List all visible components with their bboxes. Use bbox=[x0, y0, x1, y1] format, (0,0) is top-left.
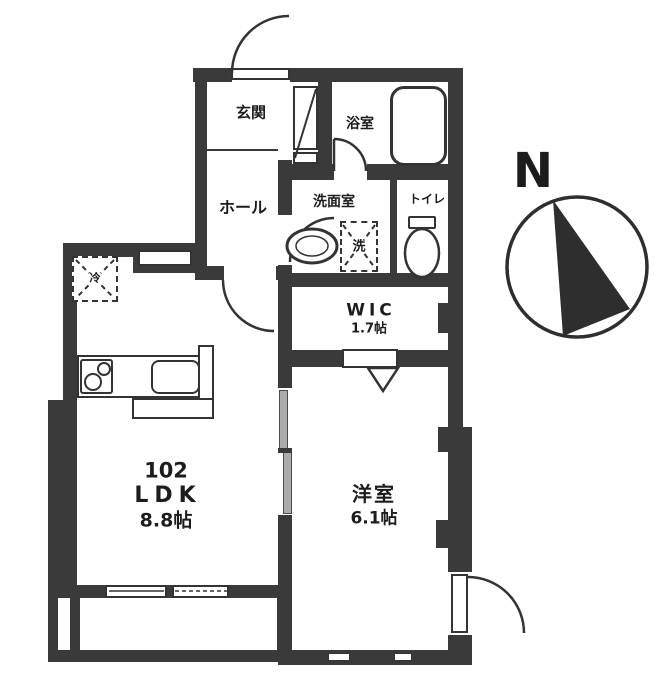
wash-basin bbox=[287, 229, 337, 263]
genkan-step-line bbox=[207, 149, 278, 151]
shoe-cabinet-lower bbox=[293, 152, 318, 164]
counter-ledge bbox=[132, 398, 214, 419]
hall-ldk-door-arc bbox=[223, 280, 274, 331]
toilet-tank bbox=[408, 216, 436, 229]
compass-needle bbox=[553, 200, 630, 336]
wall-pillar bbox=[436, 520, 450, 548]
stove-burner bbox=[97, 362, 111, 376]
room-label-ldk: LDK bbox=[134, 485, 201, 507]
wall bbox=[448, 82, 463, 572]
sliding-door-panel bbox=[279, 390, 288, 450]
wall bbox=[290, 68, 463, 82]
washer-symbol: 洗 bbox=[350, 241, 367, 254]
toilet-bowl bbox=[405, 229, 439, 277]
sliding-door-stub bbox=[278, 448, 292, 453]
window bbox=[138, 250, 192, 266]
room-label-western: 洋室 bbox=[352, 484, 396, 504]
wall bbox=[48, 400, 77, 598]
wall bbox=[278, 273, 463, 287]
room-label-hall: ホール bbox=[219, 200, 267, 216]
hall-ldk-door-opening bbox=[224, 266, 276, 280]
sliding-window bbox=[105, 585, 167, 598]
wall bbox=[448, 635, 463, 650]
compass-circle bbox=[507, 197, 647, 337]
wash-basin-inner bbox=[296, 236, 328, 256]
vent-slot bbox=[394, 653, 412, 661]
north-label: N bbox=[513, 147, 553, 195]
bedroom-door-arc bbox=[468, 577, 524, 633]
bathtub bbox=[390, 86, 447, 166]
kitchen-sink bbox=[151, 360, 200, 394]
balcony-divider bbox=[70, 598, 80, 650]
wall-pillar bbox=[438, 303, 450, 333]
entrance-door-opening bbox=[232, 68, 290, 82]
sliding-window bbox=[172, 585, 229, 598]
bath-door-opening bbox=[334, 164, 367, 180]
room-label-wic: WIC bbox=[346, 303, 396, 320]
wall bbox=[318, 82, 332, 164]
shoe-cabinet bbox=[293, 86, 318, 150]
wall bbox=[390, 180, 397, 273]
room-label-washroom: 洗面室 bbox=[313, 195, 355, 209]
sliding-door-panel bbox=[283, 452, 292, 514]
room-label-genkan: 玄関 bbox=[236, 106, 266, 121]
fridge-symbol: 冷 bbox=[88, 273, 103, 284]
unit-number: 102 bbox=[144, 461, 188, 482]
washroom-door-opening bbox=[278, 215, 292, 265]
room-size-ldk: 8.8帖 bbox=[140, 512, 193, 531]
balcony-wall bbox=[48, 650, 287, 662]
washroom-door-arc bbox=[290, 218, 334, 262]
entrance-door-arc bbox=[232, 16, 289, 73]
wall bbox=[48, 585, 292, 598]
vent-slot bbox=[328, 653, 350, 661]
wall bbox=[292, 164, 463, 180]
floor-plan: 玄関 浴室 ホール 洗面室 トイレ WIC 1.7帖 102 LDK 8.8帖 … bbox=[0, 0, 672, 680]
room-size-wic: 1.7帖 bbox=[351, 323, 387, 336]
stove-burner bbox=[84, 373, 102, 391]
bedroom-door-leaf bbox=[451, 574, 468, 633]
wic-entry-opening bbox=[342, 349, 398, 368]
room-label-bath: 浴室 bbox=[346, 117, 374, 131]
room-label-toilet: トイレ bbox=[409, 193, 445, 205]
room-size-western: 6.1帖 bbox=[350, 511, 397, 528]
wic-door-triangle bbox=[368, 368, 398, 391]
wall bbox=[278, 650, 472, 665]
wall-pillar bbox=[438, 427, 472, 452]
plan-annotations bbox=[0, 0, 672, 680]
